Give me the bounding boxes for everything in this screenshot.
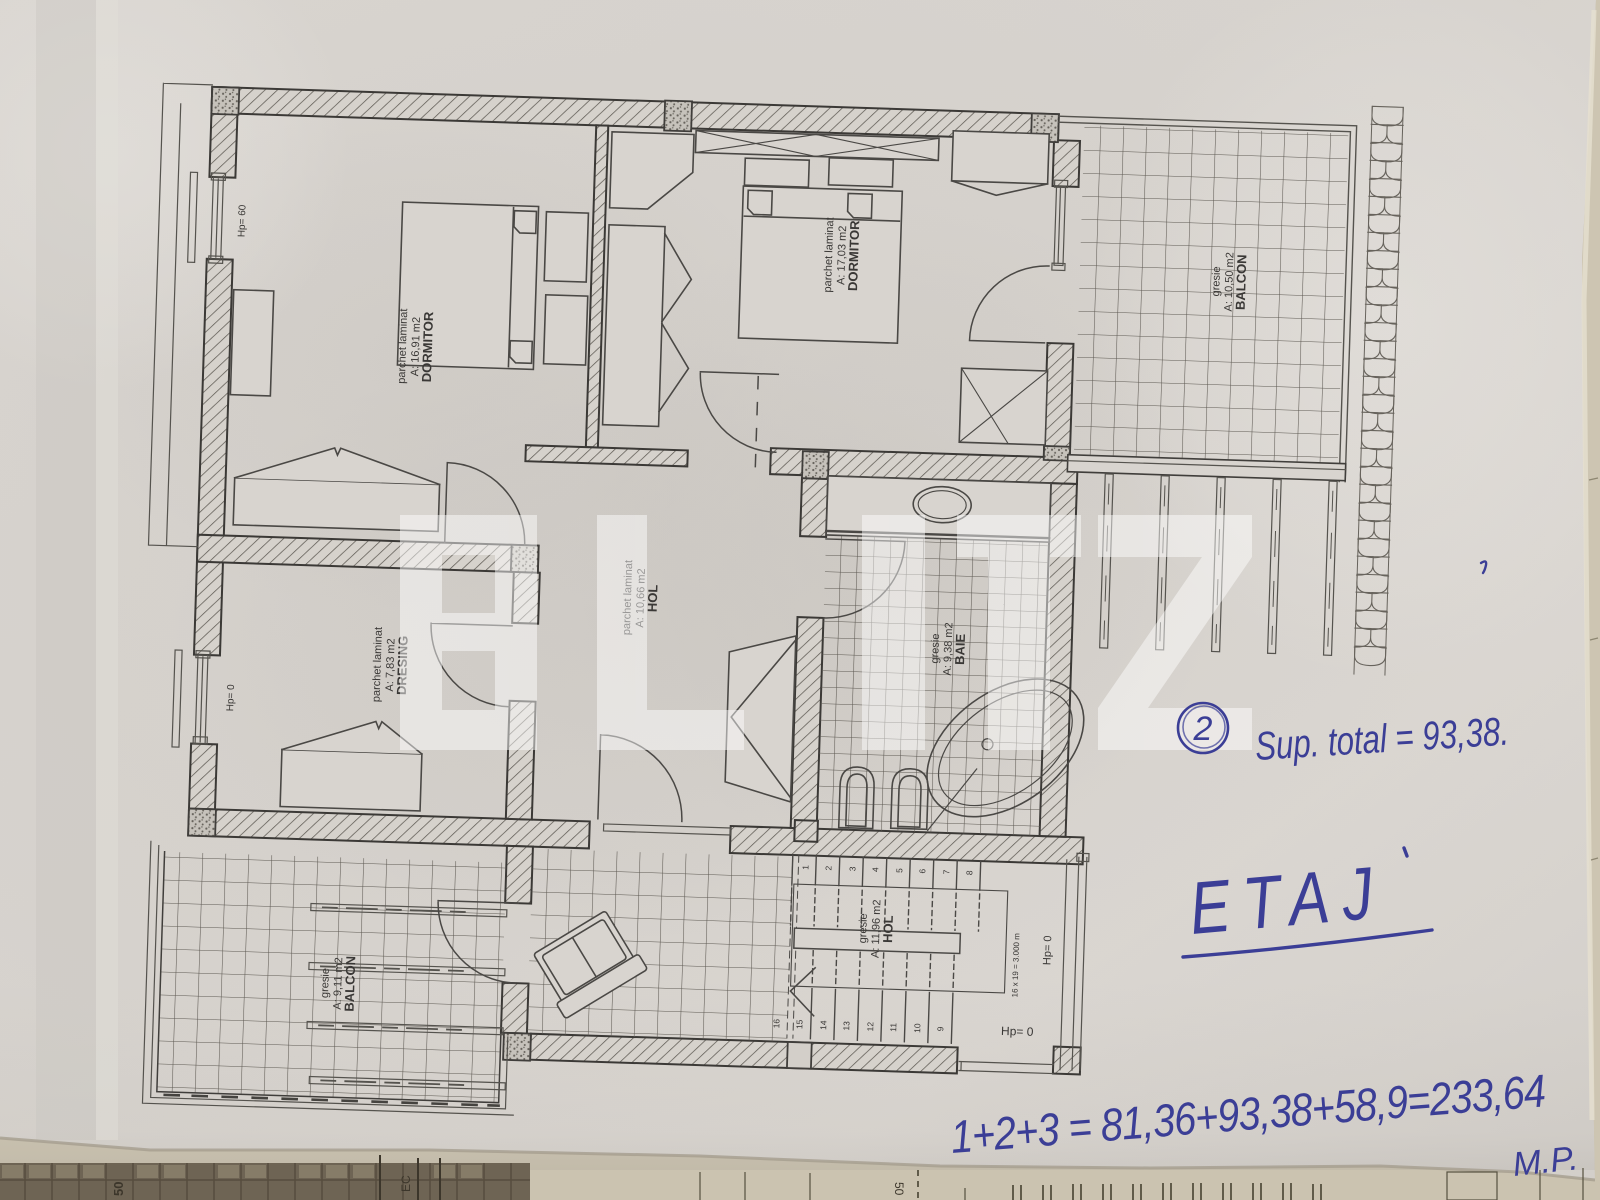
svg-text:A: 7,83 m2: A: 7,83 m2	[384, 638, 398, 692]
svg-text:parchet laminat: parchet laminat	[371, 627, 385, 703]
svg-text:8: 8	[964, 870, 974, 875]
svg-text:16: 16	[771, 1018, 781, 1028]
svg-text:1: 1	[800, 865, 810, 870]
svg-text:M.P.: M.P.	[1511, 1139, 1580, 1184]
svg-text:15: 15	[794, 1019, 804, 1029]
svg-text:Hp= 0: Hp= 0	[1001, 1024, 1034, 1039]
svg-text:EC: EC	[399, 1175, 413, 1192]
svg-text:ETAJ: ETAJ	[1186, 852, 1389, 951]
svg-text:gresie: gresie	[857, 913, 870, 943]
svg-text:10: 10	[912, 1023, 922, 1033]
svg-text:gresie: gresie	[929, 633, 942, 663]
svg-text:9: 9	[935, 1026, 945, 1031]
svg-text:3: 3	[847, 866, 857, 871]
svg-text:gresie: gresie	[1210, 266, 1223, 296]
svg-text:5: 5	[894, 868, 904, 873]
svg-text:7: 7	[941, 869, 951, 874]
svg-text:A: 10,50 m2: A: 10,50 m2	[1223, 252, 1237, 312]
svg-text:parchet laminat: parchet laminat	[396, 308, 410, 384]
svg-text:12: 12	[865, 1021, 875, 1031]
svg-text:13: 13	[841, 1021, 851, 1031]
svg-text:Hp= 0: Hp= 0	[225, 684, 237, 712]
svg-text:A: 11,96 m2: A: 11,96 m2	[870, 899, 884, 958]
svg-text:Hp= 0: Hp= 0	[1041, 935, 1054, 965]
svg-text:50: 50	[892, 1182, 906, 1196]
svg-text:parchet laminat: parchet laminat	[822, 217, 836, 293]
svg-text:A: 16,91 m2: A: 16,91 m2	[409, 317, 423, 377]
svg-text:A: 9,38 m2: A: 9,38 m2	[942, 622, 956, 676]
svg-text:A: 9,11 m2: A: 9,11 m2	[332, 957, 346, 1010]
svg-text:50: 50	[111, 1182, 126, 1196]
svg-text:gresie: gresie	[319, 968, 332, 998]
svg-text:Hp= 60: Hp= 60	[236, 204, 248, 237]
svg-text:14: 14	[818, 1020, 828, 1030]
svg-text:11: 11	[888, 1023, 898, 1032]
svg-text:2: 2	[1193, 710, 1213, 748]
svg-text:6: 6	[917, 868, 927, 873]
svg-text:4: 4	[870, 867, 880, 872]
svg-text:A: 17,03 m2: A: 17,03 m2	[835, 225, 849, 285]
svg-text:2: 2	[823, 865, 833, 870]
